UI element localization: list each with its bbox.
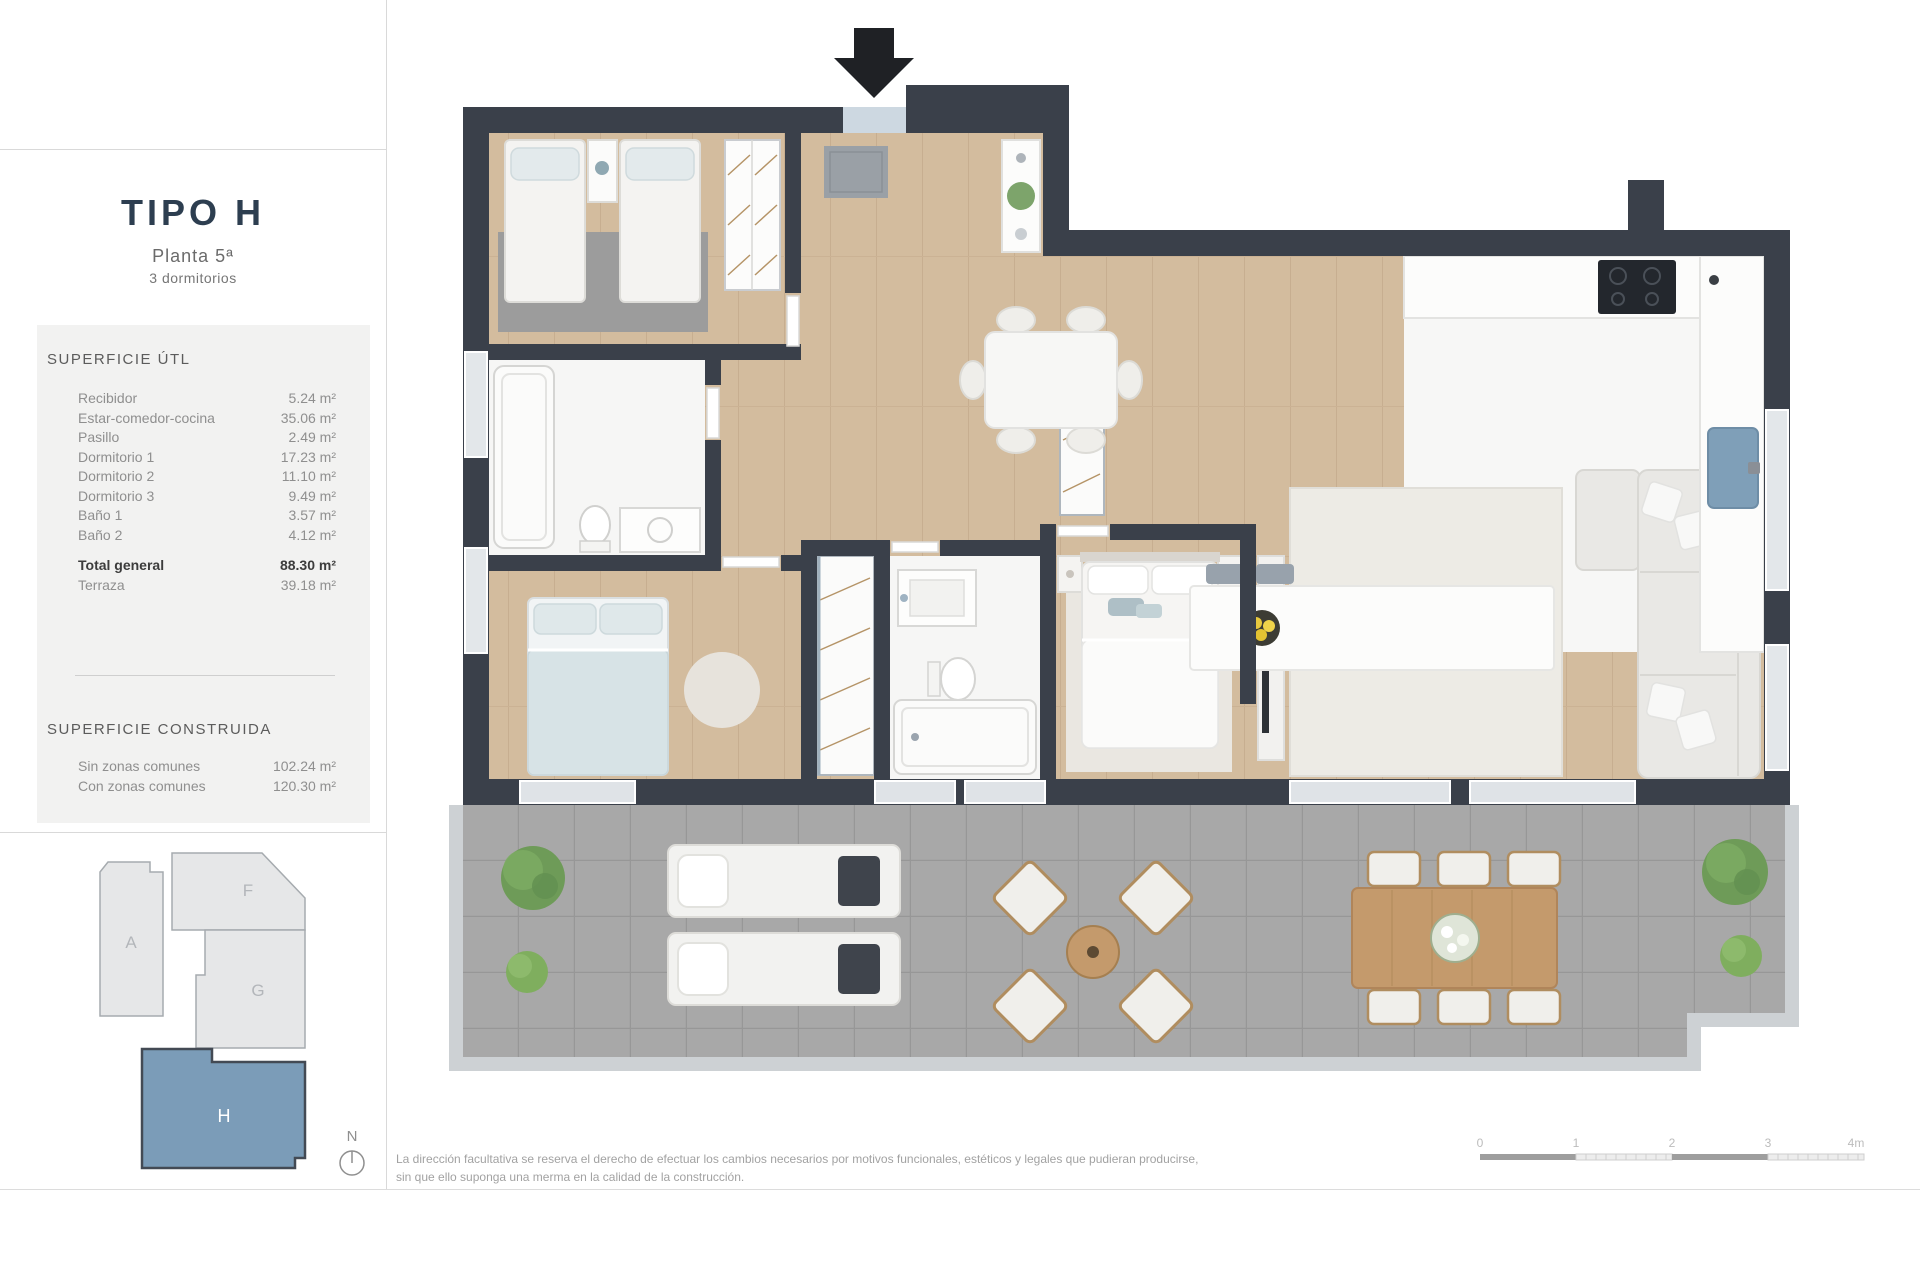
keyplan-unit-f	[172, 853, 305, 930]
nightstand	[1058, 556, 1082, 592]
sun-lounger	[668, 933, 900, 1005]
entrance-door	[843, 107, 906, 133]
keyplan-label-h: H	[218, 1106, 231, 1126]
wardrobe	[725, 140, 780, 290]
doormat	[824, 146, 888, 198]
toilet	[580, 506, 610, 552]
terrace-tiles	[463, 805, 1785, 1057]
cooktop	[1598, 260, 1676, 314]
terrace-plant	[506, 951, 548, 993]
stool	[1256, 564, 1294, 584]
keyplan-label-g: G	[251, 981, 264, 1000]
keyplan-label-f: F	[243, 881, 253, 900]
svg-text:2: 2	[1669, 1136, 1676, 1150]
sink	[620, 508, 700, 552]
north-label: N	[347, 1128, 358, 1145]
keyplan-label-a: A	[125, 933, 137, 952]
scale-bar: 0 1 2 3 4m	[1477, 1136, 1865, 1160]
north-indicator-icon: N	[340, 1128, 364, 1175]
terrace-plant	[1720, 935, 1762, 977]
svg-text:0: 0	[1477, 1136, 1484, 1150]
nightstand	[588, 140, 617, 202]
terrace	[449, 805, 1799, 1071]
keyplan: A F G H	[100, 853, 305, 1168]
plant-icon	[1007, 182, 1035, 210]
floor-plan-canvas: A F G H N 0 1 2 3 4m	[0, 0, 1920, 1280]
bathtub	[894, 700, 1036, 774]
bed-single	[620, 140, 700, 302]
sink	[898, 570, 976, 626]
console-table	[1002, 140, 1040, 252]
svg-text:4m: 4m	[1848, 1136, 1865, 1150]
terrace-plant	[501, 846, 565, 910]
rug	[684, 652, 760, 728]
entrance-arrow-icon	[834, 28, 914, 98]
shower-closet	[817, 556, 874, 775]
kitchen-sink	[1708, 428, 1760, 508]
bed-double	[528, 598, 668, 775]
dining-table	[985, 332, 1117, 428]
bed-single	[505, 140, 585, 302]
stool	[1206, 564, 1244, 584]
toilet	[928, 658, 975, 700]
terrace-dining-set	[1352, 852, 1560, 1024]
terrace-plant	[1702, 839, 1768, 905]
sun-lounger	[668, 845, 900, 917]
svg-text:1: 1	[1573, 1136, 1580, 1150]
svg-text:3: 3	[1765, 1136, 1772, 1150]
